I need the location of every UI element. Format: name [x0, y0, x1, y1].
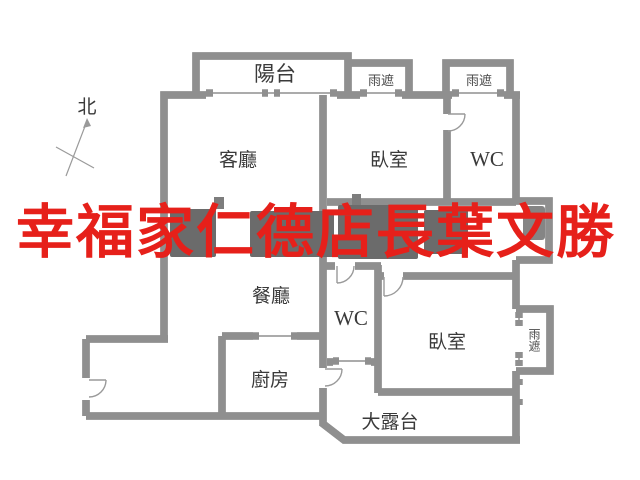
room-label-wc-south: WC	[334, 306, 368, 330]
bedroom-south-door-arc	[384, 277, 403, 296]
canopy-label-north-1: 雨遮	[368, 73, 394, 88]
floor-plan-canvas: 北 陽台 客廳 臥室 WC 餐廳 廚房 WC 臥室 大露台 雨遮 雨遮 雨遮 幸…	[0, 0, 640, 480]
watermark-text: 幸福家仁德店長葉文勝	[16, 200, 616, 265]
room-label-dining-room: 餐廳	[252, 285, 290, 307]
canopy-label-north-2: 雨遮	[466, 73, 492, 88]
wc-north-door-arc	[448, 114, 465, 131]
room-label-bedroom-south: 臥室	[428, 331, 466, 353]
canopy-label-east: 雨遮	[527, 328, 541, 352]
room-label-living-room: 客廳	[219, 149, 257, 171]
room-label-balcony: 陽台	[254, 62, 296, 86]
room-label-kitchen: 廚房	[251, 368, 289, 391]
compass-needle	[56, 118, 94, 176]
kitchen-terrace-door-arc	[325, 369, 342, 386]
compass-label: 北	[77, 96, 96, 118]
room-label-terrace: 大露台	[361, 411, 418, 433]
floor-plan-image: 北 陽台 客廳 臥室 WC 餐廳 廚房 WC 臥室 大露台 雨遮 雨遮 雨遮 幸…	[0, 0, 640, 480]
entry-door-arc	[89, 380, 106, 397]
wc-south-door-arc	[337, 266, 354, 283]
room-label-wc-north: WC	[470, 147, 504, 171]
compass: 北	[56, 96, 97, 176]
room-label-bedroom-north: 臥室	[370, 149, 408, 171]
